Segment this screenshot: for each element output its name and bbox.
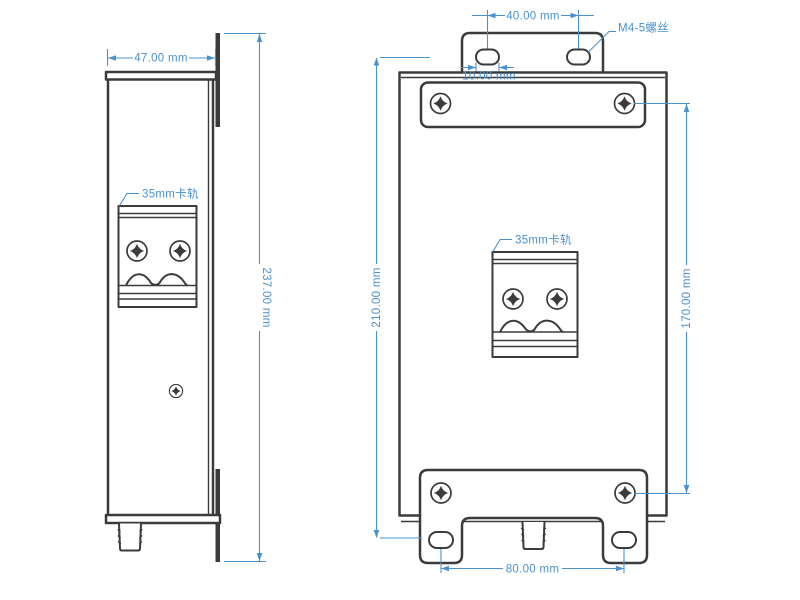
side-bottom-lid [106,515,220,523]
side-din-rail-clip [119,206,197,307]
din-rail-label-text: 35mm卡轨 [515,233,572,247]
dim-top-slot-spacing-40mm: 40.00 mm [472,11,594,23]
front-view: 40.00 mm 10.00 mm M4-5螺丝 [371,10,693,576]
dim-label-slot-width: 10.00 mm [462,71,516,83]
bottom-slot-left [429,532,453,548]
phillips-screw-icon [127,241,147,261]
dim-label-top-spacing: 40.00 mm [506,11,560,23]
m4-screw-label-text: M4-5螺丝 [618,22,669,35]
phillips-screw-icon [615,94,635,114]
mechanical-drawing: 47.00 mm 237.00 mm 35mm卡轨 [0,0,800,600]
top-slot-left [476,50,499,65]
dim-label-right-height: 170.00 mm [681,268,693,328]
dim-label-left-height: 210.00 mm [371,267,383,327]
dim-label-bottom-spacing: 80.00 mm [506,564,560,576]
label-m4-screw: M4-5螺丝 [588,22,669,53]
dim-bottom-slot-spacing-80mm: 80.00 mm [441,549,624,576]
phillips-screw-icon [503,289,523,309]
top-slot-right [567,50,590,65]
phillips-screw-icon-small [169,384,182,397]
dim-height-237mm: 237.00 mm [224,34,272,562]
phillips-screw-icon [431,94,451,114]
side-bottom-connector [118,524,143,551]
front-bottom-connector [521,522,546,549]
phillips-screw-icon [431,483,451,503]
dim-label-height: 237.00 mm [260,267,272,327]
side-view: 47.00 mm 237.00 mm 35mm卡轨 [106,33,272,562]
bottom-slot-right [612,532,636,548]
phillips-screw-icon [547,289,567,309]
dim-label-width: 47.00 mm [134,53,188,65]
top-panel [421,83,645,128]
phillips-screw-icon [615,483,635,503]
front-din-rail-clip [493,252,578,357]
phillips-screw-icon [170,241,190,261]
side-top-lid [106,72,216,80]
drawing-svg: 47.00 mm 237.00 mm 35mm卡轨 [0,0,800,600]
din-rail-label-text: 35mm卡轨 [142,187,199,201]
dim-width-47mm: 47.00 mm [108,49,216,66]
